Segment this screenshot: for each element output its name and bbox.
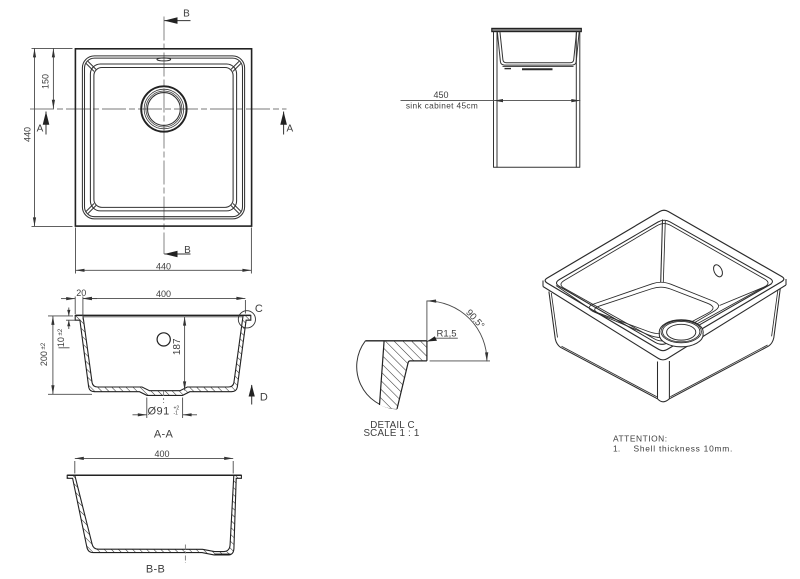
svg-text:SCALE 1 : 1: SCALE 1 : 1 — [363, 428, 419, 439]
svg-text:A-A: A-A — [154, 429, 174, 441]
svg-text:B: B — [183, 8, 190, 19]
svg-text:-1: -1 — [174, 410, 179, 416]
svg-text:440: 440 — [156, 261, 171, 271]
svg-text:90.5°: 90.5° — [463, 307, 486, 331]
svg-text:B: B — [184, 245, 191, 256]
svg-text:Shell thickness 10mm.: Shell thickness 10mm. — [634, 444, 734, 454]
svg-text:450: 450 — [433, 90, 448, 100]
svg-text:R1,5: R1,5 — [437, 328, 457, 339]
svg-text:sink cabinet 45cm: sink cabinet 45cm — [406, 101, 478, 111]
svg-text:A: A — [286, 124, 293, 135]
svg-text:400: 400 — [156, 289, 171, 299]
svg-text:ATTENTION:: ATTENTION: — [613, 433, 668, 443]
svg-text:D: D — [260, 392, 268, 404]
svg-text:150: 150 — [40, 74, 50, 89]
svg-text:A: A — [37, 124, 44, 135]
svg-text:20: 20 — [76, 288, 86, 298]
svg-text:1.: 1. — [613, 444, 620, 454]
svg-text:187: 187 — [172, 338, 183, 355]
svg-text:C: C — [255, 303, 263, 315]
svg-text:440: 440 — [23, 127, 33, 142]
svg-text:400: 400 — [154, 449, 169, 459]
svg-text:B-B: B-B — [146, 564, 165, 576]
svg-text:200 ±2: 200 ±2 — [39, 342, 49, 366]
svg-text:Ø91: Ø91 — [148, 405, 170, 417]
svg-text:10 ±2: 10 ±2 — [56, 328, 66, 347]
